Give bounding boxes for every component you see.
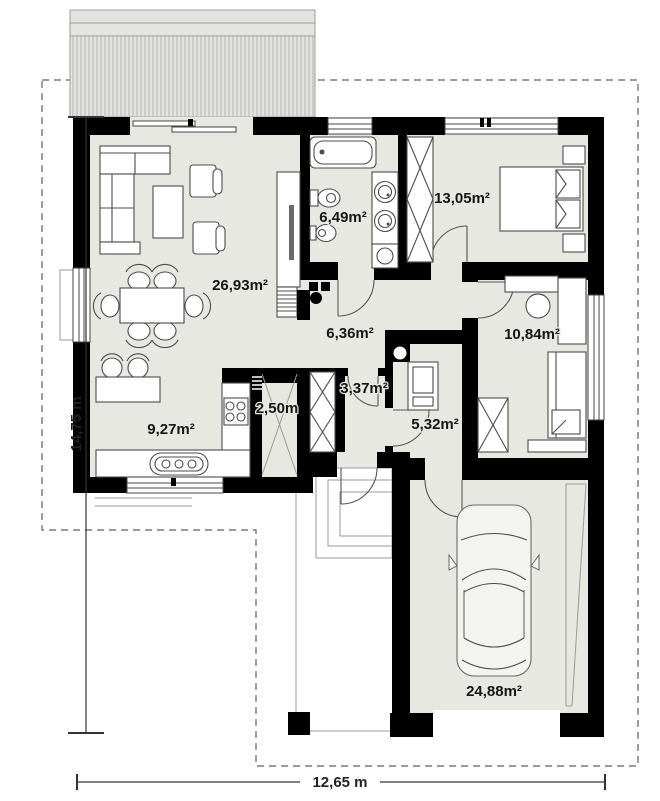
vanity-sinks — [372, 172, 398, 244]
wardrobe-bathside — [407, 137, 433, 262]
desk — [558, 278, 586, 344]
wall-segment — [73, 477, 127, 493]
nightstand-1 — [563, 146, 585, 164]
living-west-window — [73, 268, 90, 342]
wall-segment — [297, 452, 337, 477]
wall-segment — [300, 262, 338, 280]
wall-segment — [253, 117, 328, 135]
wall-segment — [300, 135, 310, 262]
wall-segment — [462, 262, 478, 282]
floor-plan-drawing: 14,75 m 12,65 m 26,93m² 6,49m² 13,05m² 6… — [0, 0, 660, 801]
terrace-roof — [70, 10, 315, 117]
bedroom2-window — [588, 295, 604, 420]
wall-segment — [385, 330, 462, 344]
wall-segment — [558, 117, 604, 135]
hob — [224, 398, 248, 425]
label-bathroom: 6,49m² — [319, 209, 367, 226]
boiler — [408, 362, 438, 410]
wall-segment — [588, 420, 604, 736]
desk-chair — [526, 294, 550, 318]
wall-segment — [410, 458, 425, 480]
terrace-slider-window — [130, 119, 253, 133]
utility-sink — [390, 344, 410, 362]
wardrobe-bedroom2 — [478, 398, 508, 452]
wall-segment — [73, 135, 90, 268]
label-utility: 5,32m² — [411, 416, 459, 433]
tv-unit — [277, 172, 300, 287]
nightstand-2 — [563, 234, 585, 252]
wardrobe-hall — [310, 372, 335, 452]
bathtub — [310, 137, 376, 168]
bidet — [310, 225, 336, 242]
label-wc: 3,37m² — [340, 380, 388, 397]
dimension-left-label: 14,75 m — [68, 396, 85, 451]
wall-segment — [390, 713, 433, 737]
wall-segment — [392, 452, 410, 713]
dimension-bottom-label: 12,65 m — [312, 774, 367, 791]
wall-segment — [398, 135, 407, 262]
porch-post — [288, 712, 310, 735]
wall-segment — [250, 383, 262, 477]
garage-door-gap — [433, 710, 560, 736]
wall-segment — [297, 376, 310, 452]
car — [449, 505, 539, 676]
wall-segment — [223, 477, 313, 493]
wall-segment — [462, 318, 478, 458]
wall-segment — [560, 713, 604, 737]
kitchen-sink — [150, 453, 208, 475]
wall-segment — [588, 135, 604, 295]
label-bedroom2: 10,84m² — [504, 326, 560, 343]
armchair-1 — [190, 165, 222, 197]
radiator — [277, 287, 297, 317]
coffee-table — [153, 186, 183, 238]
label-pantry: 2,50m — [256, 400, 299, 417]
kitchen-window — [127, 477, 223, 493]
wall-segment — [462, 458, 588, 480]
dining-table — [120, 288, 184, 323]
front-door — [341, 468, 377, 504]
dimension-bottom: 12,65 m — [77, 774, 605, 791]
bathroom-window — [328, 118, 372, 134]
wall-segment — [73, 117, 130, 135]
label-garage: 24,88m² — [466, 683, 522, 700]
underbed-shelf — [528, 440, 586, 452]
shelf — [505, 276, 558, 292]
wall-segment — [372, 117, 445, 135]
floor-plan-page: 14,75 m 12,65 m 26,93m² 6,49m² 13,05m² 6… — [0, 0, 660, 801]
washing-machine — [372, 244, 398, 268]
bedroom1-window — [445, 118, 558, 134]
toilet — [310, 189, 340, 207]
label-bedroom1: 13,05m² — [434, 190, 490, 207]
armchair-2 — [193, 222, 225, 254]
label-hall: 6,36m² — [326, 325, 374, 342]
label-living: 26,93m² — [212, 277, 268, 294]
wall-segment — [385, 446, 393, 452]
wall-segment — [377, 452, 410, 468]
label-kitchen: 9,27m² — [147, 421, 195, 438]
